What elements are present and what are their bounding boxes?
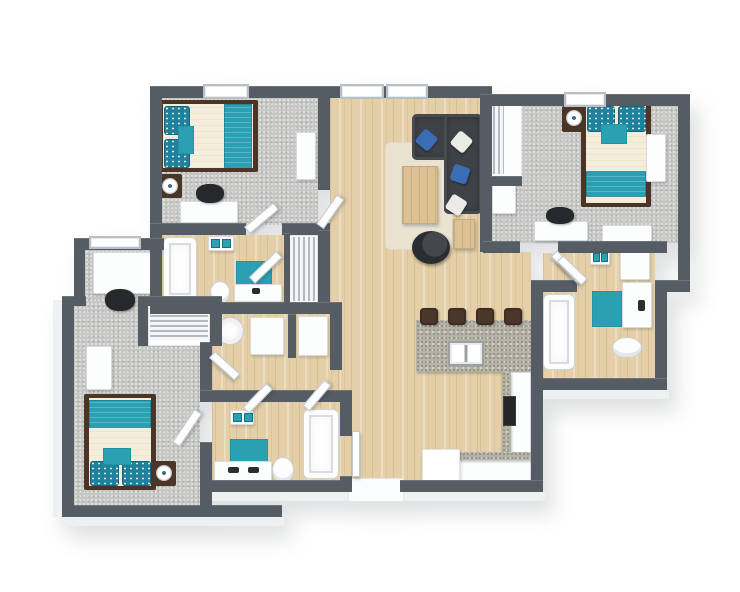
foundation-edge-bottom-mid — [203, 492, 352, 501]
wall-south-kitchen — [400, 480, 543, 492]
towel-1a — [211, 239, 220, 248]
window-bedroom-2 — [564, 92, 606, 107]
wall-south-bedroom-2-a — [483, 241, 520, 253]
wall-east-bedroom-3-lower — [200, 442, 212, 517]
wall-laundry-divider — [288, 314, 296, 358]
wall-east-bathroom-2-lower — [340, 476, 352, 492]
bed-2-blanket — [586, 171, 646, 197]
floor-plan-page — [0, 0, 740, 592]
foundation-edge-west — [53, 300, 62, 517]
refrigerator — [422, 449, 460, 481]
towel-1b — [222, 239, 231, 248]
towel-2b — [244, 413, 253, 422]
bar-stool-4 — [504, 308, 522, 325]
lamp-1 — [162, 178, 178, 194]
bar-stool-3 — [476, 308, 494, 325]
bath-mat-3 — [592, 291, 622, 327]
wall-west-living-upper — [318, 86, 330, 190]
wall-west-living-lower — [318, 230, 330, 312]
door-bathroom-2 — [352, 431, 360, 477]
wall-east-bathroom-3 — [655, 280, 667, 390]
bed-1-blanket — [224, 104, 252, 168]
wall-closet-3-west — [138, 296, 148, 346]
wall-south-bathroom-3 — [543, 378, 667, 390]
dresser-4 — [602, 225, 652, 242]
desk-chair-3 — [546, 207, 574, 224]
wall-south-bedroom-1-a — [150, 223, 246, 235]
bed-1-accent-pillow — [178, 126, 194, 154]
bathtub-2 — [303, 409, 339, 479]
window-bedroom-1 — [203, 84, 249, 99]
dresser-1 — [296, 132, 316, 180]
wall-west-bedroom-1 — [150, 86, 162, 308]
towel-2a — [233, 413, 242, 422]
bedroom-2-closet-door — [492, 182, 516, 214]
window-living-2 — [386, 84, 428, 99]
dresser-3 — [646, 134, 666, 182]
toilet-3 — [612, 337, 642, 358]
pantry-wire-shelves — [290, 237, 316, 301]
island-sink — [448, 341, 484, 366]
faucet-2b — [248, 467, 259, 473]
desk-1 — [180, 201, 238, 223]
wall-south-bedroom-3 — [62, 505, 282, 517]
wall-east-bedroom-2 — [678, 94, 690, 292]
counter-bottom-granite — [458, 452, 531, 460]
utility-unit — [298, 316, 328, 356]
faucet-1 — [252, 288, 260, 294]
foundation-edge-bottom-kitchen — [400, 492, 545, 501]
wall-east-closet-2 — [330, 302, 342, 370]
wall-closet-3-east — [210, 296, 222, 346]
wall-tub-nook — [531, 280, 577, 292]
foundation-edge-bath3 — [543, 390, 669, 399]
dresser-2 — [86, 346, 112, 390]
vanity-3 — [622, 282, 652, 328]
bar-stool-2 — [448, 308, 466, 325]
faucet-3 — [638, 300, 645, 311]
vanity-2 — [214, 461, 272, 481]
bedroom-2-closet-shelves — [490, 98, 504, 174]
bathtub-3 — [543, 294, 575, 370]
towel-3a — [593, 253, 600, 262]
wall-south-bathroom-2 — [203, 480, 350, 492]
wall-pantry-divider — [284, 233, 290, 303]
wall-closet-bedroom-2-jog — [490, 176, 522, 186]
towel-3b — [601, 253, 608, 262]
desk-chair-1 — [196, 184, 224, 203]
lamp-2 — [566, 110, 582, 126]
wall-east-kitchen — [531, 283, 543, 490]
faucet-2a — [228, 467, 239, 473]
window-living-1 — [340, 84, 384, 99]
desk-chair-2 — [105, 289, 135, 311]
coffee-table — [402, 166, 438, 224]
dryer-unit — [250, 317, 284, 355]
desk-2 — [93, 252, 153, 294]
desk-3 — [534, 221, 588, 241]
bed-3-accent-pillow — [103, 448, 131, 465]
window-bedroom-3 — [89, 236, 141, 249]
lamp-3 — [156, 465, 172, 481]
side-table — [453, 219, 475, 249]
entry-threshold — [348, 478, 404, 502]
accent-chair — [412, 231, 450, 264]
wall-north-bathroom-2 — [200, 390, 352, 402]
wall-south-bedroom-2-b — [558, 241, 667, 253]
wall-east-living — [480, 94, 492, 252]
foundation-edge-bottom-left — [62, 517, 284, 526]
floor-plan — [0, 0, 740, 592]
bathtub-1 — [163, 237, 197, 301]
bar-stool-1 — [420, 308, 438, 325]
stove — [503, 396, 516, 426]
bedroom-3-closet-shelf — [150, 310, 208, 340]
bed-3-blanket — [89, 400, 151, 428]
bed-2-accent-pillow — [601, 124, 627, 144]
wall-west-bedroom-3 — [62, 296, 74, 517]
wall-east-bathroom-2-upper — [340, 390, 352, 436]
